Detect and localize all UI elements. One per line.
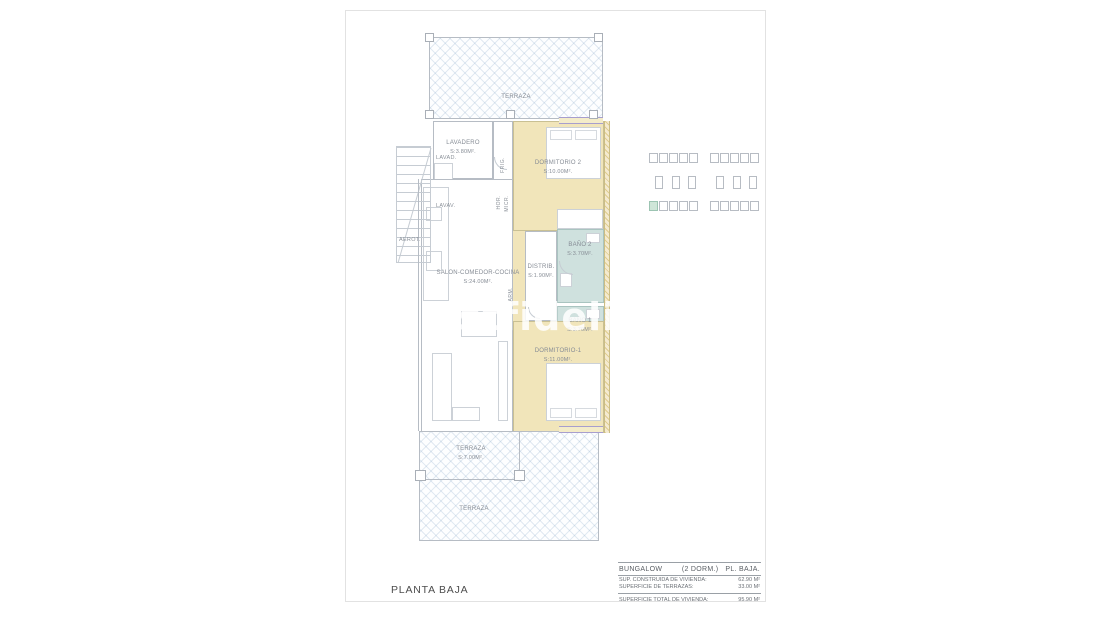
keyplan-unit: [688, 176, 696, 189]
room-terraza-top: [429, 37, 603, 119]
keyplan-unit: [749, 176, 757, 189]
sink-label: LAVAV.: [436, 203, 455, 209]
room-salon-label: SALON-COMEDOR-COCINA S:24.00M².: [436, 269, 519, 286]
staircase: [396, 146, 431, 263]
oven-label: HOR.: [496, 195, 502, 210]
keyplan-unit: [655, 176, 663, 189]
plan-sheet: TERRAZA LAVADERO S:3.80M². LAVAD. FRIG. …: [345, 10, 766, 602]
room-dormitorio-2-label: DORMITORIO 2 S:10.00M².: [535, 159, 581, 176]
keyplan-unit: [669, 201, 678, 211]
keyplan-unit: [740, 201, 749, 211]
keyplan-unit: [720, 153, 729, 163]
column-marker: [415, 470, 426, 481]
keyplan-unit: [716, 176, 724, 189]
staircase-diagonal: [397, 147, 432, 264]
site-key-plan: [649, 153, 763, 211]
pillow: [550, 408, 572, 418]
summary-floor: PL. BAJA.: [725, 566, 760, 573]
keyplan-unit: [730, 153, 739, 163]
keyplan-unit: [689, 153, 698, 163]
watermark: estfidelit: [432, 295, 635, 339]
room-distribuidor-label: DISTRIB. S:1.90M².: [528, 263, 555, 280]
keyplan-top-row: [710, 153, 763, 163]
keyplan-unit: [750, 201, 759, 211]
room-terraza-top-label: TERRAZA: [501, 93, 530, 102]
keyplan-unit: [679, 153, 688, 163]
keyplan-unit: [740, 153, 749, 163]
summary-row-value: 33.00 M²: [738, 584, 760, 590]
keyplan-unit: [679, 201, 688, 211]
summary-table: BUNGALOW (2 DORM.) PL. BAJA. SUP. CONSTR…: [618, 562, 761, 605]
room-lavadero-label: LAVADERO S:3.80M².: [446, 139, 479, 156]
plan-title: PLANTA BAJA: [391, 584, 468, 596]
keyplan-bottom-row: [649, 201, 702, 211]
summary-row-terraces: SUPERFICIE DE TERRAZAS: 33.00 M²: [618, 583, 761, 590]
keyplan-unit: [649, 153, 658, 163]
keyplan-unit: [710, 201, 719, 211]
column-marker: [594, 33, 603, 42]
sofa-chaise: [452, 407, 480, 421]
terrace-divider-h: [419, 479, 519, 480]
room-bano-2-label: BAÑO 2 S:3.70M².: [567, 241, 593, 258]
micro-label: MICR.: [504, 195, 510, 212]
summary-row-label: SUPERFICIE DE TERRAZAS:: [619, 584, 693, 590]
summary-type: BUNGALOW: [619, 566, 662, 573]
summary-row-value: 62.90 M²: [738, 577, 760, 583]
keyplan-unit: [730, 201, 739, 211]
room-terraza-7-label: TERRAZA S:7.00M².: [456, 445, 485, 462]
wc-bano-2: [560, 273, 572, 287]
keyplan-block: [649, 153, 702, 211]
column-marker: [506, 110, 515, 119]
keyplan-core-row: [710, 176, 763, 189]
column-marker: [514, 470, 525, 481]
keyplan-unit: [689, 201, 698, 211]
aero-label: AEROT.: [399, 237, 421, 243]
summary-total-label: SUPERFICIE TOTAL DE VIVIENDA:: [619, 597, 708, 603]
bed-dormitorio-1: [546, 363, 601, 421]
dresser-dormitorio-2: [557, 209, 603, 229]
summary-row-total: SUPERFICIE TOTAL DE VIVIENDA: 95.90 M²: [618, 593, 761, 605]
keyplan-core-row: [649, 176, 702, 189]
washer-label: LAVAD.: [436, 155, 457, 161]
window-dormitorio-1: [559, 426, 603, 433]
summary-row-constructed: SUP. CONSTRUIDA DE VIVIENDA: 62.90 M²: [618, 576, 761, 583]
tv-unit: [498, 341, 508, 421]
room-dormitorio-1-label: DORMITORIO-1 S:11.00M².: [535, 347, 582, 364]
column-marker: [425, 110, 434, 119]
keyplan-unit-highlighted: [649, 201, 658, 211]
keyplan-unit: [659, 153, 668, 163]
keyplan-unit: [669, 153, 678, 163]
keyplan-unit: [720, 201, 729, 211]
keyplan-block: [710, 153, 763, 211]
keyplan-unit: [672, 176, 680, 189]
summary-dorms: (2 DORM.): [682, 566, 719, 573]
pillow: [575, 408, 597, 418]
sofa: [432, 353, 452, 421]
column-marker: [425, 33, 434, 42]
summary-header: BUNGALOW (2 DORM.) PL. BAJA.: [618, 562, 761, 576]
pillow: [550, 130, 572, 140]
column-marker: [589, 110, 598, 119]
summary-total-value: 95.90 M²: [738, 597, 760, 603]
keyplan-unit: [659, 201, 668, 211]
keyplan-unit: [710, 153, 719, 163]
fridge-label: FRIG.: [500, 157, 506, 173]
floor-plan-image: TERRAZA LAVADERO S:3.80M². LAVAD. FRIG. …: [0, 0, 1110, 626]
keyplan-bottom-row: [710, 201, 763, 211]
keyplan-unit: [733, 176, 741, 189]
summary-row-label: SUP. CONSTRUIDA DE VIVIENDA:: [619, 577, 707, 583]
pillow: [575, 130, 597, 140]
keyplan-unit: [750, 153, 759, 163]
exterior-wall-left: [418, 179, 419, 431]
room-terraza-bottom: [419, 431, 599, 541]
room-terraza-bottom-label: TERRAZA: [459, 505, 488, 514]
exterior-wall-right: [604, 121, 610, 433]
keyplan-top-row: [649, 153, 702, 163]
